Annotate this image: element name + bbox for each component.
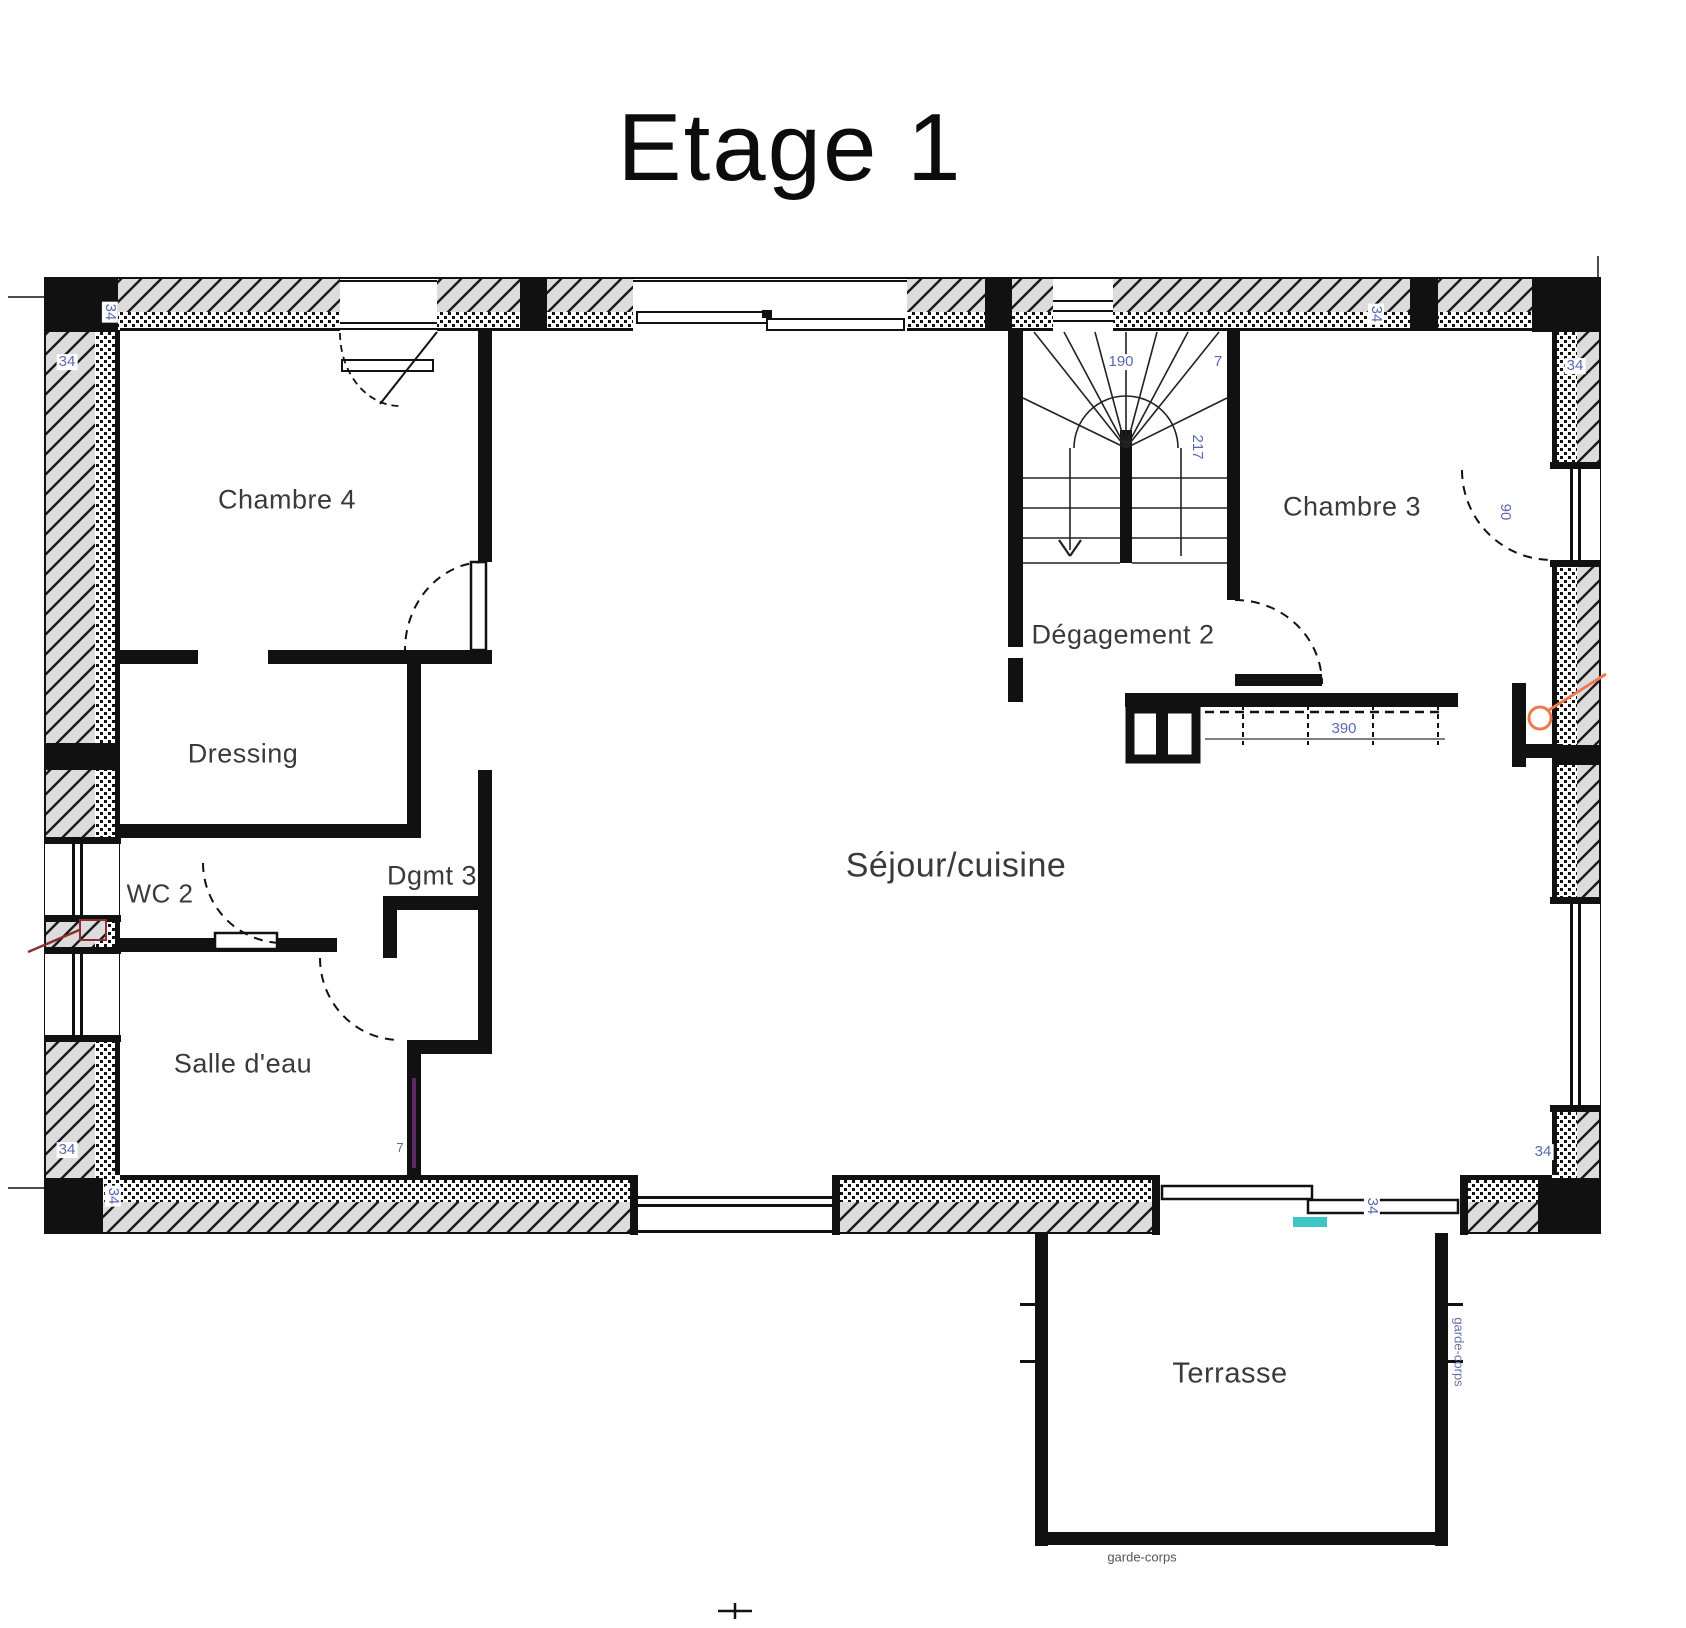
guardrail-label-right: garde-corps: [1452, 1317, 1467, 1386]
room-label-chambre4: Chambre 4: [218, 485, 356, 516]
floorplan-drawing: [0, 0, 1686, 1628]
dim-34-bottom-right: 34: [1364, 1196, 1380, 1217]
room-label-chambre3: Chambre 3: [1283, 492, 1421, 523]
dim-7-stairs: 7: [1212, 354, 1224, 370]
dim-190-stairs: 190: [1106, 354, 1135, 370]
room-label-sejour-cuisine: Séjour/cuisine: [846, 847, 1067, 886]
dim-34-right-upper: 34: [1565, 358, 1586, 374]
floorplan-page: Etage 1 Chambre 4 Chambre 3 Dressing WC …: [0, 0, 1686, 1628]
room-label-wc2: WC 2: [127, 879, 194, 910]
room-label-dgmt3: Dgmt 3: [387, 861, 477, 892]
dim-90-door: 90: [1497, 502, 1513, 523]
room-label-degagement2: Dégagement 2: [1031, 620, 1214, 651]
dim-7-salle-deau: 7: [394, 1141, 405, 1155]
room-label-terrasse: Terrasse: [1172, 1358, 1287, 1391]
cyan-marker: [1293, 1217, 1327, 1227]
guardrail-label-bottom: garde-corps: [1107, 1550, 1176, 1565]
dim-34-bottom-left: 34: [105, 1186, 121, 1207]
room-label-salle-deau: Salle d'eau: [174, 1049, 312, 1080]
dim-34-top-right: 34: [1368, 304, 1384, 325]
dim-34-top-left: 34: [102, 302, 118, 323]
chambre3-door: [1235, 600, 1322, 686]
room-label-dressing: Dressing: [188, 739, 299, 770]
dim-390-closet: 390: [1329, 721, 1358, 737]
dim-34-right-lower: 34: [1533, 1144, 1554, 1160]
dim-34-left-upper: 34: [57, 354, 78, 370]
page-title: Etage 1: [618, 93, 963, 203]
dim-217-stairs: 217: [1189, 432, 1205, 461]
dim-34-left-lower: 34: [57, 1142, 78, 1158]
